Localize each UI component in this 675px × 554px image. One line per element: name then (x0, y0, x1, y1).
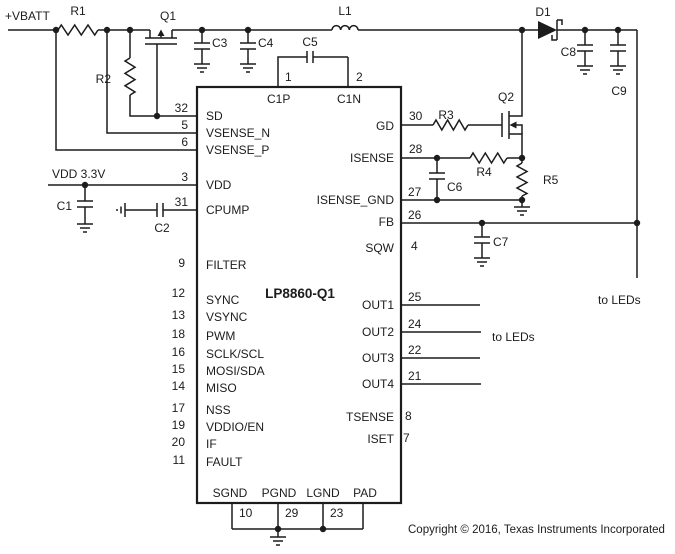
pin-label-vddio-en: VDDIO/EN (206, 420, 264, 434)
capacitor-c1 (77, 185, 93, 232)
pin-num-fault: 11 (173, 453, 186, 467)
pin-num-out4: 21 (408, 369, 422, 383)
pin-label-tsense: TSENSE (346, 410, 394, 424)
component-label-c1: C1 (57, 199, 73, 213)
pin-num-vdd: 3 (181, 170, 188, 184)
resistor-r1 (58, 25, 98, 35)
pin-num-out2: 24 (408, 317, 422, 331)
pin-num-lgnd: 23 (330, 506, 344, 520)
pin-label-vsync: VSYNC (206, 310, 248, 324)
pin-num-vsense-n: 5 (181, 118, 188, 132)
pin-label-fb: FB (379, 215, 394, 229)
pin-num-out3: 22 (408, 343, 422, 357)
pin-num-cpump: 31 (175, 195, 189, 209)
pin-label-miso: MISO (206, 381, 237, 395)
pin-label-vsense-n: VSENSE_N (206, 126, 270, 140)
pin-num-nss: 17 (172, 401, 186, 415)
component-label-d1: D1 (535, 5, 551, 19)
pin-label-sqw: SQW (365, 241, 394, 255)
pin-label-out2: OUT2 (362, 325, 394, 339)
component-label-c9: C9 (611, 84, 627, 98)
pin-num-if: 20 (172, 435, 186, 449)
capacitor-c7 (474, 223, 490, 266)
schematic-canvas: +VBATT VDD 3.3V R1 R2 Q1 C3 C4 C5 L1 D1 … (0, 0, 675, 554)
component-label-c6: C6 (447, 180, 463, 194)
pin-label-sync: SYNC (206, 293, 240, 307)
to-leds-outputs-label: to LEDs (492, 330, 535, 344)
component-label-c5: C5 (302, 35, 318, 49)
vbatt-label: +VBATT (5, 9, 50, 23)
pin-num-out1: 25 (408, 290, 422, 304)
pin-label-sd: SD (206, 109, 223, 123)
capacitor-c3 (194, 30, 210, 72)
component-label-c8: C8 (561, 45, 577, 59)
pin-label-isense-gnd: ISENSE_GND (317, 193, 395, 207)
pin-label-out4: OUT4 (362, 377, 394, 391)
pin-num-isense-gnd: 27 (408, 185, 422, 199)
mosfet-q1 (145, 30, 177, 117)
pin-label-lgnd: LGND (306, 486, 340, 500)
resistor-r5 (517, 158, 527, 200)
capacitor-c6 (429, 158, 445, 200)
pin-label-c1p: C1P (267, 92, 290, 106)
pin-num-sqw: 4 (411, 239, 418, 253)
resistor-r2 (125, 58, 135, 95)
component-label-l1: L1 (338, 4, 352, 18)
pin-label-out3: OUT3 (362, 351, 394, 365)
pin-num-fb: 26 (408, 208, 422, 222)
pin-label-out1: OUT1 (362, 298, 394, 312)
pin-label-iset: ISET (367, 432, 394, 446)
pin-num-sync: 12 (172, 286, 186, 300)
pin-num-pwm: 18 (172, 327, 186, 341)
pin-num-pgnd: 29 (285, 506, 299, 520)
pin-num-sclk-scl: 16 (172, 345, 186, 359)
copyright-notice: Copyright © 2016, Texas Instruments Inco… (408, 524, 665, 536)
vdd-rail-label: VDD 3.3V (52, 167, 105, 181)
to-leds-feedback-label: to LEDs (598, 293, 641, 307)
pin-num-isense: 28 (409, 142, 423, 156)
pin-num-tsense: 8 (405, 409, 412, 423)
pin-num-gd: 30 (409, 109, 423, 123)
pin-num-c1n: 2 (356, 70, 363, 84)
component-label-c3: C3 (212, 36, 228, 50)
resistor-r4 (470, 153, 507, 163)
component-label-q2: Q2 (498, 90, 514, 104)
pin-label-filter: FILTER (206, 258, 247, 272)
component-label-r4: R4 (476, 165, 492, 179)
pin-label-vsense-p: VSENSE_P (206, 143, 269, 157)
ic-name: LP8860-Q1 (265, 286, 335, 301)
component-label-c4: C4 (258, 36, 274, 50)
pin-num-vsense-p: 6 (181, 135, 188, 149)
component-label-r1: R1 (70, 4, 86, 18)
pin-num-mosi-sda: 15 (172, 362, 186, 376)
pin-num-sgnd: 10 (239, 506, 253, 520)
pin-label-pwm: PWM (206, 329, 235, 343)
pin-label-vdd: VDD (206, 178, 232, 192)
pin-label-if: IF (206, 437, 217, 451)
component-label-r5: R5 (543, 173, 559, 187)
pin-num-vddio-en: 19 (172, 418, 186, 432)
component-label-r2: R2 (96, 72, 112, 86)
pin-label-nss: NSS (206, 403, 231, 417)
pin-label-pad: PAD (353, 486, 377, 500)
vsense-sense-wires (56, 30, 197, 150)
pin-label-sgnd: SGND (213, 486, 248, 500)
component-label-r3: R3 (438, 108, 454, 122)
pin-num-sd: 32 (175, 101, 189, 115)
pin-label-c1n: C1N (337, 92, 361, 106)
component-label-c7: C7 (493, 235, 509, 249)
schematic-drawing: +VBATT VDD 3.3V R1 R2 Q1 C3 C4 C5 L1 D1 … (0, 0, 675, 554)
inductor-l1 (332, 26, 358, 30)
pin-num-miso: 14 (172, 379, 186, 393)
component-label-c2: C2 (154, 221, 170, 235)
pin-label-sclk-scl: SCLK/SCL (206, 347, 264, 361)
pin-num-vsync: 13 (172, 308, 186, 322)
pin-num-filter: 9 (178, 256, 185, 270)
capacitor-c8 (577, 30, 593, 74)
capacitor-c4 (240, 30, 256, 72)
pin-label-gd: GD (376, 119, 394, 133)
pin-label-fault: FAULT (206, 455, 243, 469)
pin-label-pgnd: PGND (262, 486, 297, 500)
pin-num-iset: 7 (403, 431, 410, 445)
pin-label-cpump: CPUMP (206, 203, 249, 217)
pin-label-isense: ISENSE (350, 151, 394, 165)
pin-label-mosi-sda: MOSI/SDA (206, 364, 265, 378)
vbatt-top-rail (8, 30, 637, 278)
pin-num-c1p: 1 (285, 70, 292, 84)
component-label-q1: Q1 (160, 9, 176, 23)
capacitor-c9 (610, 30, 626, 74)
